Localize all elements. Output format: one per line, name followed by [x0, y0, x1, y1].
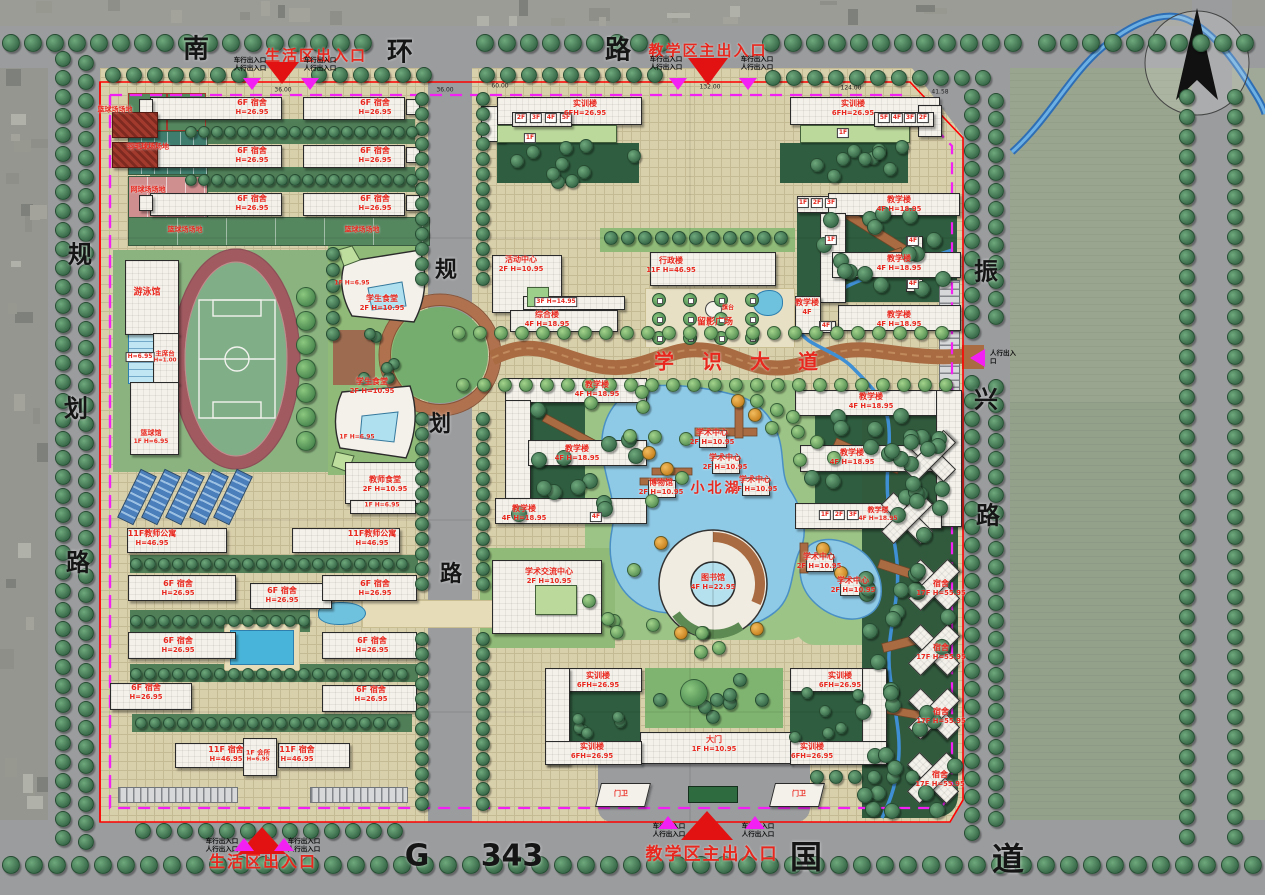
- tree: [964, 609, 980, 625]
- tree: [147, 67, 163, 83]
- tree: [256, 668, 268, 680]
- tree: [1179, 809, 1195, 825]
- tree: [604, 231, 618, 245]
- tree: [964, 807, 980, 823]
- tree: [156, 823, 172, 839]
- tree: [964, 429, 980, 445]
- entrance-arrow-magenta: [658, 816, 678, 829]
- tree: [328, 174, 340, 186]
- tree: [916, 34, 934, 52]
- tree: [672, 231, 686, 245]
- tree: [623, 856, 641, 874]
- entrance-sub-label: 车行出入口人行出入口: [650, 56, 683, 72]
- tree: [186, 668, 198, 680]
- tree: [237, 126, 249, 138]
- tree: [186, 615, 198, 627]
- tree: [988, 469, 1004, 485]
- tree: [200, 668, 212, 680]
- tree: [988, 165, 1004, 181]
- tree: [897, 378, 911, 392]
- avenue-boardwalk: [492, 348, 965, 368]
- tree: [851, 326, 865, 340]
- road-name-char: 路: [605, 30, 631, 67]
- tree: [865, 801, 881, 817]
- tree: [126, 67, 142, 83]
- tree: [862, 623, 878, 639]
- tree: [78, 834, 94, 850]
- tree: [331, 717, 343, 729]
- tree: [926, 232, 942, 248]
- building-label-dorm17: 宿舍17F H=55.95: [916, 643, 965, 661]
- road-name-char: 南: [183, 29, 209, 66]
- tree: [933, 70, 949, 86]
- tree: [601, 436, 617, 452]
- tree: [1179, 609, 1195, 625]
- tree: [364, 328, 376, 340]
- tree: [988, 147, 1004, 163]
- tree: [1179, 169, 1195, 185]
- tree: [406, 174, 418, 186]
- entrance-arrow-magenta-east: [970, 349, 985, 367]
- tree: [130, 558, 142, 570]
- tree: [387, 717, 399, 729]
- road-name-char: 规: [435, 252, 457, 284]
- tree: [1227, 409, 1243, 425]
- tree: [78, 606, 94, 622]
- tree: [988, 129, 1004, 145]
- building-label-bball: 篮球场场地: [168, 226, 203, 235]
- tree: [415, 227, 429, 241]
- building-label-dorm6: 6F 宿舍H=26.95: [236, 194, 269, 212]
- tree: [823, 212, 839, 228]
- tree: [767, 326, 781, 340]
- tree: [620, 326, 634, 340]
- tree: [55, 89, 71, 105]
- tree: [748, 408, 762, 422]
- tree: [1227, 809, 1243, 825]
- dimension-text: 36.00: [274, 87, 291, 94]
- tree: [1179, 309, 1195, 325]
- road-name-char: 划: [429, 406, 451, 438]
- tree: [660, 462, 674, 476]
- tree: [710, 693, 724, 707]
- tree: [380, 174, 392, 186]
- tree: [964, 825, 980, 841]
- tree: [964, 161, 980, 177]
- building-label-lib: 图书馆4F H=22.95: [691, 573, 736, 591]
- tree: [326, 311, 340, 325]
- tree: [964, 681, 980, 697]
- tree: [144, 558, 156, 570]
- tree: [542, 67, 558, 83]
- tree: [476, 562, 490, 576]
- tree: [78, 112, 94, 128]
- entrance-arrow-magenta: [739, 78, 757, 90]
- tree: [415, 502, 429, 516]
- tree: [476, 752, 490, 766]
- tree: [1227, 569, 1243, 585]
- tree: [211, 174, 223, 186]
- tree: [932, 500, 948, 516]
- tree: [1179, 149, 1195, 165]
- tree: [788, 326, 802, 340]
- building-label-club: 1F 会所H=6.95: [246, 748, 270, 763]
- tree: [964, 627, 980, 643]
- tree: [476, 632, 490, 646]
- tree: [1179, 669, 1195, 685]
- tree: [988, 541, 1004, 557]
- entrance-arrow-magenta: [745, 816, 765, 829]
- tree: [473, 326, 487, 340]
- tree: [792, 378, 806, 392]
- tree: [765, 70, 781, 86]
- tree: [296, 287, 316, 307]
- tree: [476, 92, 490, 106]
- tree: [476, 532, 490, 546]
- tree: [341, 126, 353, 138]
- tree: [988, 183, 1004, 199]
- avenue-name-char: 道: [798, 346, 818, 375]
- tree: [601, 612, 615, 626]
- building-label-teach: 教学楼4F H=18.95: [575, 380, 620, 398]
- tree: [1227, 689, 1243, 705]
- tree: [324, 856, 342, 874]
- tree: [476, 502, 490, 516]
- tree: [810, 770, 824, 784]
- tree: [655, 231, 669, 245]
- tree: [415, 707, 429, 721]
- tree: [1227, 709, 1243, 725]
- tree: [415, 767, 429, 781]
- building-label-train: 实训楼6FH=26.95: [571, 742, 613, 760]
- planter-tree: [652, 312, 666, 326]
- tree: [130, 615, 142, 627]
- building-label-dorm17: 宿舍17F H=55.95: [915, 770, 964, 788]
- tree: [117, 856, 135, 874]
- tree: [415, 782, 429, 796]
- tree: [415, 242, 429, 256]
- floor-chip: 3F: [847, 510, 859, 520]
- tree: [1106, 856, 1124, 874]
- tree: [68, 34, 86, 52]
- tree: [374, 67, 390, 83]
- tree: [1179, 489, 1195, 505]
- tree: [177, 823, 193, 839]
- tree: [627, 563, 641, 577]
- tree: [315, 174, 327, 186]
- tree: [964, 771, 980, 787]
- building-label-comp: 综合楼4F H=18.95: [525, 310, 570, 328]
- tree: [302, 174, 314, 186]
- tree: [55, 431, 71, 447]
- tree: [341, 174, 353, 186]
- floor-chip: 5F: [878, 113, 890, 123]
- tree: [415, 662, 429, 676]
- tree: [415, 677, 429, 691]
- tree: [55, 108, 71, 124]
- building-label-dorm6: 6F 宿舍H=26.95: [236, 98, 269, 116]
- tree: [935, 326, 949, 340]
- entrance-sub-label: 车行出入口人行出入口: [304, 57, 337, 73]
- tree: [476, 547, 490, 561]
- tree: [1179, 269, 1195, 285]
- tree: [55, 526, 71, 542]
- building: [535, 585, 577, 615]
- tree: [819, 705, 831, 717]
- tree: [988, 703, 1004, 719]
- building-label-train: 实训楼6FH=26.95: [832, 99, 874, 117]
- tree: [105, 67, 121, 83]
- tree: [988, 201, 1004, 217]
- tree: [270, 668, 282, 680]
- tree: [78, 188, 94, 204]
- building: [139, 195, 153, 211]
- tree: [784, 34, 802, 52]
- tree: [214, 668, 226, 680]
- avenue-name-char: 识: [702, 346, 722, 375]
- building-label-dorm6: 6F 宿舍H=26.95: [236, 146, 269, 164]
- tree: [988, 631, 1004, 647]
- tree: [144, 668, 156, 680]
- tree: [55, 488, 71, 504]
- tree: [134, 34, 152, 52]
- tree: [1037, 856, 1055, 874]
- tree: [964, 143, 980, 159]
- tree: [78, 587, 94, 603]
- tree: [891, 70, 907, 86]
- tree: [55, 773, 71, 789]
- tree: [1104, 34, 1122, 52]
- tree: [387, 823, 403, 839]
- building-label-dorm11: 11F 宿舍H=46.95: [279, 745, 314, 763]
- tree: [78, 207, 94, 223]
- tree: [542, 34, 560, 52]
- floor-chip: 4F: [907, 279, 919, 289]
- tree: [55, 317, 71, 333]
- building-label-acad: 学术中心2F H=10.95: [690, 428, 735, 446]
- tree: [825, 473, 841, 489]
- tree: [177, 717, 189, 729]
- tree: [964, 465, 980, 481]
- tree: [922, 856, 940, 874]
- tree: [683, 326, 697, 340]
- tree: [740, 231, 754, 245]
- tree: [578, 326, 592, 340]
- road-name-char: G: [405, 839, 430, 874]
- tree: [1179, 469, 1195, 485]
- tree: [827, 169, 841, 183]
- building-label-train: 实训楼6FH=26.95: [819, 671, 861, 689]
- tree: [1227, 229, 1243, 245]
- building-label-train: 实训楼6FH=26.95: [577, 671, 619, 689]
- tree: [284, 558, 296, 570]
- tree: [945, 856, 963, 874]
- tree: [1179, 249, 1195, 265]
- tree: [810, 158, 824, 172]
- tree: [237, 174, 249, 186]
- tree: [324, 823, 340, 839]
- tree: [55, 640, 71, 656]
- tree: [370, 856, 388, 874]
- tree: [244, 34, 262, 52]
- tree: [242, 668, 254, 680]
- tree: [1179, 549, 1195, 565]
- dimension-text: 36.00: [436, 87, 453, 94]
- floor-chip: 1F: [797, 198, 809, 208]
- tree: [1179, 129, 1195, 145]
- building-label-tennis: 网球场场地: [131, 186, 166, 195]
- entrance-arrow-red: [681, 811, 733, 840]
- tree: [78, 435, 94, 451]
- tree: [326, 263, 340, 277]
- tree: [396, 558, 408, 570]
- tree: [78, 701, 94, 717]
- tree: [893, 582, 909, 598]
- building-label-admin: 行政楼11F H=46.95: [646, 256, 695, 274]
- tree: [200, 558, 212, 570]
- tree: [250, 126, 262, 138]
- tree: [635, 385, 649, 399]
- tree: [988, 93, 1004, 109]
- tree: [964, 305, 980, 321]
- tree: [642, 446, 656, 460]
- planter-tree: [683, 293, 697, 307]
- avenue-name-char: 学: [654, 346, 674, 375]
- tree: [1227, 589, 1243, 605]
- tree: [340, 558, 352, 570]
- tree: [1152, 856, 1170, 874]
- tree: [579, 139, 593, 153]
- tree: [476, 272, 490, 286]
- tree: [476, 517, 490, 531]
- tree: [396, 668, 408, 680]
- tree: [78, 473, 94, 489]
- tree: [233, 717, 245, 729]
- tree: [284, 668, 296, 680]
- tree: [964, 323, 980, 339]
- building-label-teach: 教学楼4F H=18.95: [877, 195, 922, 213]
- dimension-text: 41.58: [931, 89, 948, 96]
- tree: [476, 107, 490, 121]
- tree: [55, 203, 71, 219]
- tree: [563, 67, 579, 83]
- tree: [828, 34, 846, 52]
- building-label-dorm6: 6F 宿舍H=26.95: [359, 579, 392, 597]
- tree: [857, 787, 873, 803]
- tree: [791, 425, 805, 439]
- tree: [964, 555, 980, 571]
- tree: [520, 34, 538, 52]
- building-label-dorm6: 6F 宿舍H=26.95: [130, 683, 163, 701]
- floor-chip: 4F: [891, 113, 903, 123]
- tree: [415, 457, 429, 471]
- tree: [1179, 329, 1195, 345]
- tree: [168, 67, 184, 83]
- tree: [48, 856, 66, 874]
- tree: [415, 487, 429, 501]
- tree: [1179, 789, 1195, 805]
- tree: [296, 407, 316, 427]
- road-name-char: 道: [992, 834, 1024, 880]
- tree: [296, 431, 316, 451]
- tree: [757, 231, 771, 245]
- tree: [873, 277, 889, 293]
- tree: [347, 856, 365, 874]
- tree: [829, 770, 843, 784]
- tree: [476, 577, 490, 591]
- tree: [476, 182, 490, 196]
- tree: [623, 429, 637, 443]
- road-name-char: 路: [976, 496, 1000, 531]
- tree: [395, 67, 411, 83]
- building-label-badminton: 羽毛球场场地: [127, 143, 169, 152]
- tree: [415, 737, 429, 751]
- building-label-teach2: 教学楼4F: [795, 298, 819, 316]
- tree: [1148, 34, 1166, 52]
- floor-chip: 2F: [811, 198, 823, 208]
- tree: [586, 34, 604, 52]
- tree: [988, 595, 1004, 611]
- building-label-teach: 教学楼4F H=18.95: [555, 444, 600, 462]
- tree: [55, 754, 71, 770]
- tree: [55, 811, 71, 827]
- tree: [289, 174, 301, 186]
- building-label-teach: 教学楼4F H=18.95: [859, 506, 898, 522]
- tree: [326, 668, 338, 680]
- outdoor-pool: [230, 630, 294, 665]
- floor-chip: 3F: [825, 198, 837, 208]
- floor-chip: 4F: [545, 113, 557, 123]
- building-label-bball: 篮球场场地: [98, 106, 133, 115]
- tree: [312, 668, 324, 680]
- tree: [964, 215, 980, 231]
- tree: [837, 263, 853, 279]
- tree: [78, 777, 94, 793]
- tree: [876, 378, 890, 392]
- tree: [415, 752, 429, 766]
- tree: [186, 856, 204, 874]
- tree: [270, 558, 282, 570]
- tree: [807, 70, 823, 86]
- building-label-teach: 教学楼4F H=18.95: [849, 392, 894, 410]
- floor-chip: 1F: [524, 133, 536, 143]
- tree: [415, 427, 429, 441]
- tree: [315, 126, 327, 138]
- tree: [641, 326, 655, 340]
- tree: [172, 558, 184, 570]
- tree: [1179, 749, 1195, 765]
- tree: [263, 174, 275, 186]
- tree: [654, 536, 668, 550]
- tree: [1179, 389, 1195, 405]
- tree: [415, 472, 429, 486]
- tree: [540, 378, 554, 392]
- tree: [712, 641, 726, 655]
- tree: [78, 74, 94, 90]
- tree: [415, 577, 429, 591]
- dimension-text: 60.00: [491, 83, 508, 90]
- tree: [852, 689, 864, 701]
- tree: [55, 355, 71, 371]
- tree: [476, 647, 490, 661]
- tree: [884, 803, 900, 819]
- tree: [247, 717, 259, 729]
- tree: [366, 823, 382, 839]
- tree: [1227, 189, 1243, 205]
- tree: [415, 532, 429, 546]
- tree: [256, 615, 268, 627]
- tree: [870, 70, 886, 86]
